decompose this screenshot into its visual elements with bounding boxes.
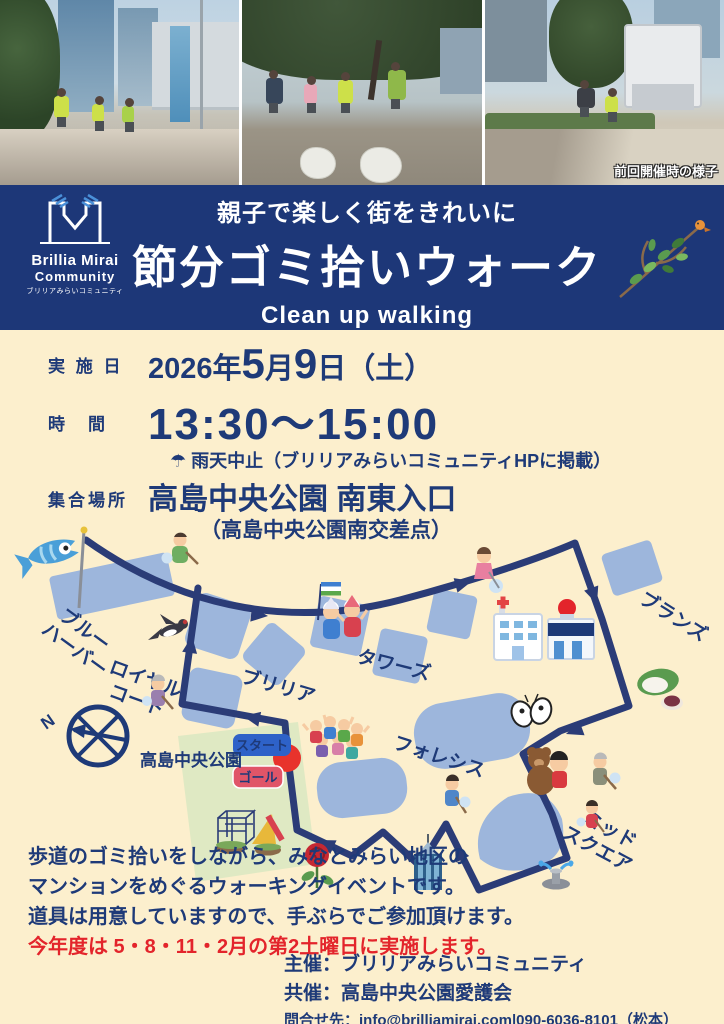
umbrella-icon: ☂ [170,451,186,471]
cohost-line: 共催：高島中央公園愛護会 [284,979,678,1008]
photo1-blue-sign [170,26,190,122]
photo2-building [440,28,482,94]
date-weekday: （土） [346,353,433,385]
branch-decoration [616,213,712,301]
photo3-building-left [485,0,547,82]
photo1-volunteer-child-2 [122,106,134,123]
date-year: 2026年 [148,353,242,385]
kashiwa-mochi-icon [635,666,683,710]
hospital-icon [494,597,542,661]
photo3-truck-cab [632,84,694,110]
compass-icon: N [37,707,127,765]
photo-sidewalk-cleanup-3: 前回開催時の様子 [485,0,724,185]
description-line: 道具は用意していますので、手ぶらでご参加頂けます。 [28,902,548,932]
photo2-volunteer-3 [338,80,353,104]
building-foresis-2 [314,755,409,820]
date-month-num: 5 [242,340,265,387]
photo1-volunteer-child [92,104,104,122]
date-day: 日 [317,353,346,385]
photo3-tree [549,0,633,88]
time-label: 時 間 [48,410,108,435]
photo1-pole [200,0,203,150]
crowd-icon [303,715,369,759]
brillia-m-logo-icon [38,191,112,245]
building-brillia-2 [180,666,244,730]
header-band: Brillia Mirai Community ブリリアみらいコミュニティ 親子… [0,185,724,330]
organizer-line: 主催：ブリリアみらいコミュニティ [284,950,678,979]
photo1-volunteer [54,96,69,118]
logo-name-line2: Community [20,269,130,284]
header-subtitle: 親子で楽しく街をきれいに [128,193,606,228]
photo-street-cleanup-1 [0,0,239,185]
police-station-icon: POLICE [548,599,594,659]
compass-n-label: N [37,711,58,734]
photo2-trash-bag-2 [360,147,402,183]
photo2-volunteer-1 [266,78,283,104]
photo2-volunteer-2 [304,84,317,104]
label-takashima-park: 高島中央公園 [140,750,242,770]
photo-caption: 前回開催時の様子 [614,161,718,180]
date-value: 2026年5月9日（土） [148,340,433,388]
label-branz: ブランズ [635,587,711,647]
photo1-ground [0,129,239,185]
logo-name-line1: Brillia Mirai [20,252,130,269]
photo-strip: 前回開催時の様子 [0,0,724,185]
logo-name-line3: ブリリアみらいコミュニティ [20,286,130,296]
photo3-volunteer-bending [577,88,595,108]
event-description: 歩道のゴミ拾いをしながら、みなとみらい地区の マンションをめぐるウォーキングイベ… [28,842,548,962]
brillia-logo: Brillia Mirai Community ブリリアみらいコミュニティ [20,191,130,296]
elder-volunteer-icon [593,753,621,790]
photo2-trash-bag-1 [300,147,336,179]
building-branz [600,539,663,597]
police-sign-label: POLICE [555,625,587,635]
photo3-volunteer-child [605,96,618,113]
swallow-icon [148,614,188,640]
bear-and-kintaro-icon [527,747,568,795]
description-line: マンションをめぐるウォーキングイベントです。 [28,872,548,902]
rain-note-text: 雨天中止（ブリリアみらいコミュニティHPに掲載） [191,451,611,471]
photo-group-cleanup-2 [242,0,481,185]
map-labels: ブルーハーバー ロイヤルコート ブリリア タワーズ ブランズ フォレシス ミッド… [37,587,711,877]
date-label: 実 施 日 [48,352,123,377]
photo2-volunteer-4 [388,70,406,100]
event-title: 節分ゴミ拾いウォーク [128,231,606,296]
photo1-glass-building [58,0,114,112]
building-towers-3 [426,588,478,640]
date-day-num: 9 [294,340,317,387]
goal-badge-label: ゴール [238,770,277,785]
volunteer-green-icon [162,533,199,564]
flyer-body: 実 施 日 2026年5月9日（土） 時 間 13:30〜15:00 ☂ 雨天中… [0,330,724,1024]
start-badge-label: スタート [236,738,288,753]
meeting-place-value: 高島中央公園 南東入口 [148,474,456,518]
contact-line: 問合せ先：info@brilliamirai.com|090-6036-8101… [284,1008,678,1024]
description-line: 歩道のゴミ拾いをしながら、みなとみらい地区の [28,842,548,872]
rain-cancellation-note: ☂ 雨天中止（ブリリアみらいコミュニティHPに掲載） [170,447,611,473]
footer: 主催：ブリリアみらいコミュニティ 共催：高島中央公園愛護会 問合せ先：info@… [284,950,678,1024]
time-value: 13:30〜15:00 [148,388,439,452]
meeting-place-label: 集合場所 [48,486,128,511]
photo1-white-building [152,22,239,110]
header-subtitle-en: Clean up walking [128,302,606,330]
boy-volunteer-icon [445,775,471,814]
label-royal-court: ロイヤルコート [98,657,184,724]
header-titles: 親子で楽しく街をきれいに 節分ゴミ拾いウォーク Clean up walking [128,193,606,330]
event-flyer: 前回開催時の様子 Brillia Mirai Community ブリリアみらい… [0,0,724,1024]
date-month: 月 [265,353,294,385]
